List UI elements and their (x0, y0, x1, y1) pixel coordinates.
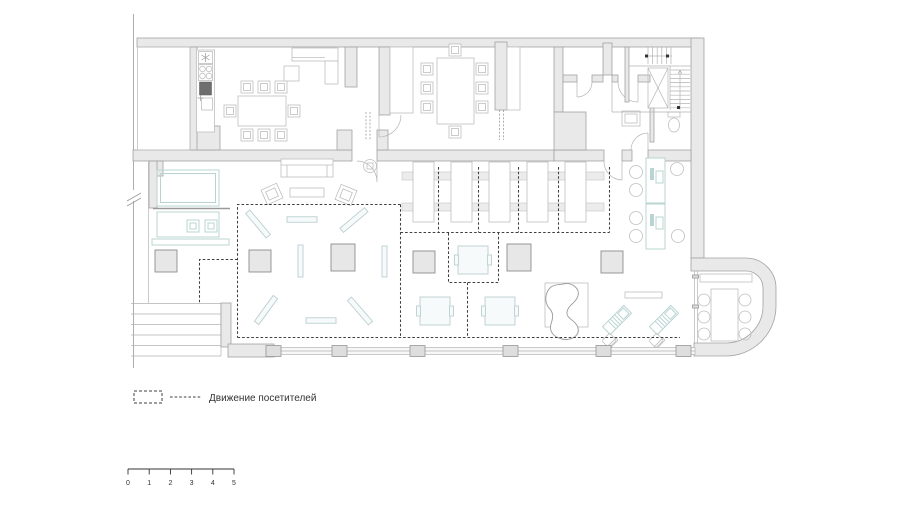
reception-counter (157, 212, 219, 237)
floor-plan-drawing: Движение посетителей 0 1 2 3 4 5 (0, 0, 900, 518)
scale-tick-label: 3 (190, 480, 194, 487)
conference-table (437, 58, 474, 124)
scale-tick-label: 1 (147, 480, 151, 487)
duct-shaft (507, 47, 520, 110)
legend-zone-swatch (134, 391, 162, 403)
stairs-upper (645, 48, 672, 65)
wc-block (622, 108, 680, 142)
storefront-glazing (266, 346, 695, 357)
stair-core (612, 47, 691, 112)
duct-shaft (390, 47, 413, 113)
exhibition-displays (246, 208, 662, 340)
legend: Движение посетителей (134, 391, 316, 404)
corner-sofa (292, 48, 338, 61)
right-meeting-room (693, 271, 753, 343)
meeting-room (421, 44, 488, 138)
scale-bar: 0 1 2 3 4 5 (126, 469, 236, 487)
stairs-side (670, 66, 690, 110)
top-wall (137, 38, 700, 47)
credenza (700, 274, 752, 282)
workstation (641, 306, 685, 350)
fridge (200, 82, 212, 95)
shelf-unit (565, 162, 586, 222)
side-table (284, 66, 299, 81)
scale-tick-label: 0 (126, 480, 130, 487)
scale-tick-label: 5 (232, 480, 236, 487)
dining-table (238, 96, 286, 126)
armchair (261, 183, 283, 205)
legend-label: Движение посетителей (209, 393, 316, 404)
columns (155, 244, 623, 273)
shelf-unit (489, 162, 510, 222)
interior-walls (133, 42, 691, 176)
sofa (281, 159, 333, 177)
folding-partition (500, 110, 504, 140)
library-shelving (402, 162, 604, 222)
floor-plan-page: Движение посетителей 0 1 2 3 4 5 (0, 0, 900, 518)
shelf-unit (451, 162, 472, 222)
toilet (668, 112, 680, 117)
adjacent-room (138, 47, 191, 150)
scale-tick-label: 4 (211, 480, 215, 487)
scale-tick-label: 2 (168, 480, 172, 487)
table (711, 289, 738, 341)
reception-area (149, 161, 230, 245)
shelf-unit (413, 162, 434, 222)
workstation (594, 306, 638, 350)
reception-desk (157, 170, 219, 206)
shelf-unit (527, 162, 548, 222)
display-bar (625, 292, 662, 298)
right-wall (691, 38, 704, 258)
coffee-table (290, 188, 324, 197)
folding-partition (366, 112, 370, 140)
armchair (335, 184, 357, 205)
shelf-band (152, 239, 229, 245)
sculpture-blob (545, 283, 588, 339)
elevator (648, 68, 668, 108)
lounge-area (261, 159, 377, 206)
